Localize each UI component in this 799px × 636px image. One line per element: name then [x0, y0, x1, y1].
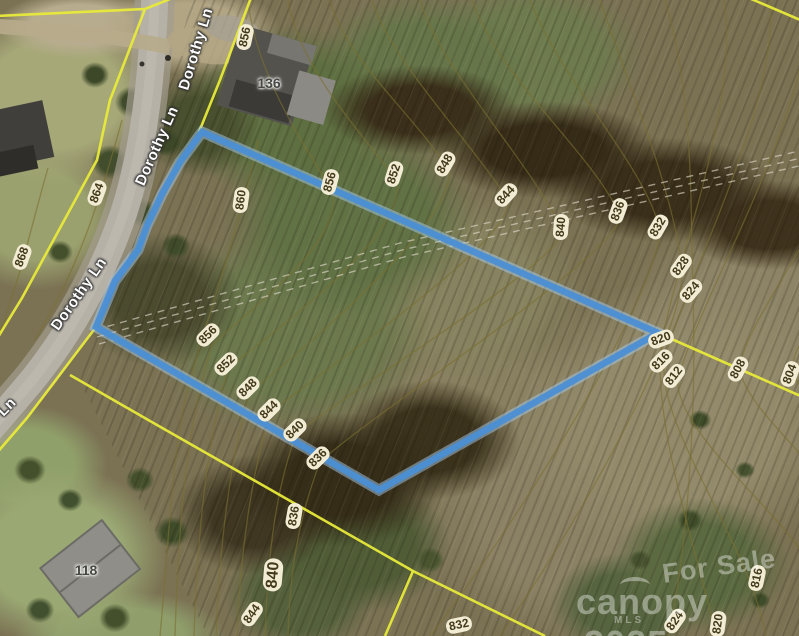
- contour-elevation-label: 856: [193, 320, 222, 349]
- contour-elevation-label: 824: [677, 276, 705, 306]
- canopy-tilde-accent-icon: [620, 577, 650, 593]
- contour-elevation-label: 856: [235, 23, 255, 52]
- mls-label: MLS: [614, 615, 644, 626]
- contour-elevation-label: 852: [383, 159, 405, 188]
- contour-elevation-label: 844: [254, 395, 283, 424]
- house-number-label: 118: [75, 562, 98, 578]
- contour-elevation-label: 868: [11, 242, 34, 272]
- contour-elevation-label: 836: [607, 196, 630, 226]
- road-name-label: Dorothy Ln: [132, 104, 182, 189]
- contour-elevation-label: 848: [233, 373, 262, 402]
- road-name-label: Ln: [0, 394, 20, 420]
- aerial-parcel-map: 8568608648688568528488448408368328288248…: [0, 0, 799, 636]
- contour-elevation-label: 828: [667, 251, 694, 281]
- contour-elevation-label: 840: [280, 415, 309, 444]
- contour-elevation-label: 864: [86, 178, 109, 208]
- contour-elevation-label: 832: [645, 212, 671, 242]
- house-number-label: 136: [257, 75, 280, 91]
- contour-elevation-label: 844: [492, 180, 521, 209]
- contour-elevation-label: 840: [552, 213, 569, 240]
- canopy-mls-watermark: canopy 2025 MLS: [576, 581, 799, 636]
- contour-elevation-label: 856: [319, 167, 340, 196]
- map-labels: 8568608648688568528488448408368328288248…: [0, 0, 799, 636]
- road-name-label: Dorothy Ln: [48, 254, 111, 333]
- contour-elevation-label: 836: [303, 443, 332, 472]
- contour-elevation-label: 804: [779, 359, 799, 389]
- road-name-label: Dorothy Ln: [175, 6, 216, 92]
- contour-elevation-label: 852: [211, 349, 240, 378]
- contour-elevation-label: 840: [262, 558, 284, 592]
- contour-elevation-label: 836: [284, 502, 303, 530]
- contour-elevation-label: 820: [646, 328, 676, 351]
- contour-elevation-label: 844: [238, 599, 265, 629]
- contour-elevation-label: 832: [445, 615, 474, 635]
- contour-elevation-label: 808: [725, 354, 750, 384]
- contour-elevation-label: 860: [232, 186, 250, 214]
- contour-elevation-label: 848: [432, 149, 458, 179]
